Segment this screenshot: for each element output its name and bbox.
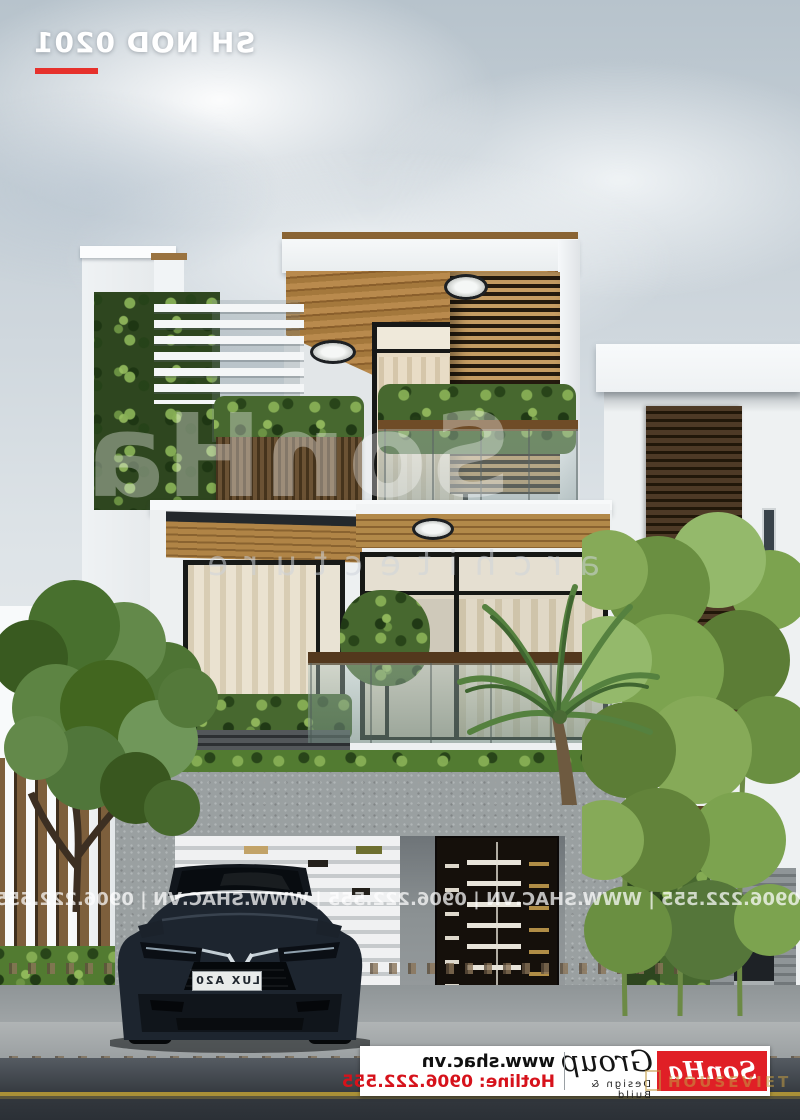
entry-door	[437, 838, 557, 1006]
banner-divider	[564, 1052, 565, 1090]
neighbor-house-right-roof	[596, 344, 800, 392]
mirrored-photo-scene: LUX A20 SonHa architecture 0906.222.555 …	[0, 0, 800, 1120]
watermark-brand-logo: SonHa	[92, 390, 512, 524]
banner-hotline: Hotline: 0906.222.555	[342, 1072, 555, 1092]
red-underline	[35, 68, 98, 74]
watermark-architecture-text: architecture	[140, 544, 600, 584]
pergola-louvers	[154, 304, 304, 404]
parapet-wood-cap	[151, 253, 187, 260]
watermark-contact-strip: 0906.222.555 | WWW.SHAC.VN | 0906.222.55…	[0, 889, 800, 910]
houseviet-watermark-text: HOUSEVIET	[668, 1073, 791, 1091]
ceiling-lamp	[444, 274, 488, 300]
sonha-logo-group-text: Group	[563, 1044, 653, 1078]
door-handle-line	[496, 842, 498, 1000]
banner-website: www.shac.vn	[422, 1051, 555, 1072]
license-plate: LUX A20	[192, 971, 262, 991]
houseviet-watermark-glyph	[645, 1070, 661, 1091]
roof-slab	[282, 239, 578, 273]
suv-car: LUX A20	[110, 850, 370, 1055]
sonha-logo-tagline: Design & Build	[551, 1079, 651, 1101]
palm-tree	[450, 545, 672, 805]
architectural-render: LUX A20 SonHa architecture 0906.222.555 …	[0, 0, 800, 1120]
ceiling-lamp	[310, 340, 356, 364]
project-code-label: SH NOD 0201	[33, 26, 256, 59]
